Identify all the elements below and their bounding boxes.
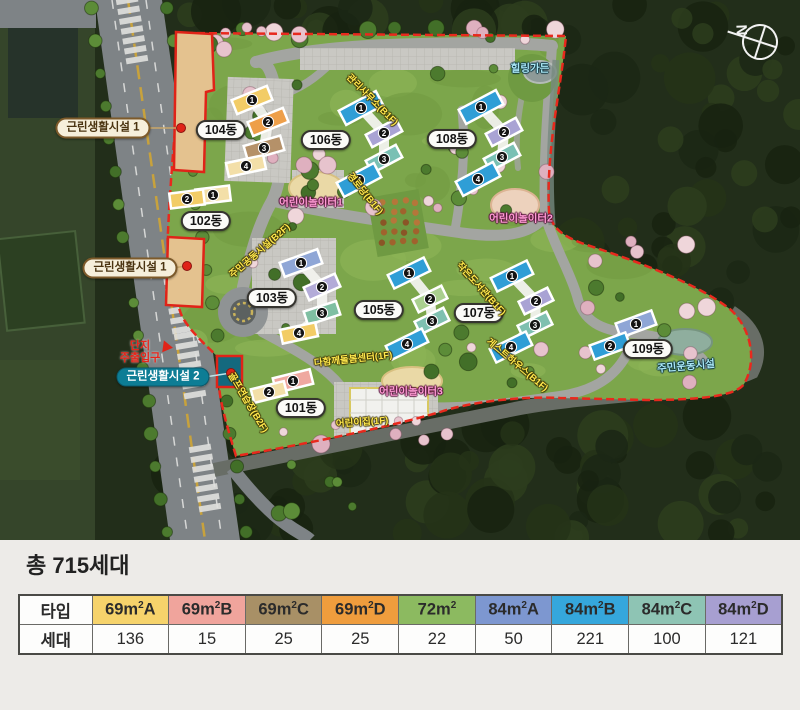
unit-badge-number: 4 xyxy=(509,343,514,352)
street-tree xyxy=(234,494,245,505)
tree xyxy=(489,64,498,73)
forest-blob xyxy=(618,217,638,237)
blossom-tree xyxy=(216,41,232,57)
unit-badge-number: 2 xyxy=(428,295,433,304)
water-area xyxy=(8,18,78,118)
garden-plot xyxy=(412,209,418,215)
tree xyxy=(388,22,401,35)
tree xyxy=(658,324,671,337)
garden-plot xyxy=(412,238,418,244)
forest-blob xyxy=(633,403,678,448)
forest-blob xyxy=(423,491,470,538)
compass-n-label: N xyxy=(732,24,749,35)
street-tree xyxy=(103,133,114,144)
forest-blob xyxy=(459,451,480,472)
blossom-tree xyxy=(248,258,258,268)
street-tree xyxy=(100,101,111,112)
forest-blob xyxy=(667,187,706,226)
garden-plot xyxy=(389,239,395,245)
unit-badge-number: 2 xyxy=(266,118,271,127)
forest-blob xyxy=(546,437,572,463)
unit-badge-number: 3 xyxy=(262,144,267,153)
unit-summary-section: 총 715세대 타입69m2A69m2B69m2C69m2D72m284m2A8… xyxy=(0,540,800,710)
unit-badge-number: 2 xyxy=(382,129,387,138)
blossom-tree xyxy=(242,23,252,33)
facility-marker-dot xyxy=(177,124,186,133)
unit-type-cell-1: 69m2B xyxy=(169,595,246,625)
facility-marker-dot xyxy=(183,262,192,271)
unit-badge-number: 4 xyxy=(297,329,302,338)
unit-badge-number: 3 xyxy=(430,317,435,326)
blossom-tree xyxy=(423,196,433,206)
site-plan-page: 121212341234123412341234123412 N 단지 주출입구… xyxy=(0,0,800,710)
forest-blob xyxy=(731,434,762,465)
forest-blob xyxy=(755,491,775,511)
blossom-tree xyxy=(678,236,695,253)
unit-badge-number: 1 xyxy=(359,104,364,113)
forest-blob xyxy=(664,52,716,104)
tree xyxy=(292,80,302,90)
forest-blob xyxy=(686,451,714,479)
tree xyxy=(430,66,444,80)
forest-blob xyxy=(731,160,757,186)
tree xyxy=(348,502,356,510)
unit-count-cell-1: 15 xyxy=(169,625,246,655)
unit-badge-number: 3 xyxy=(533,321,538,330)
playground-2 xyxy=(491,189,539,221)
tree xyxy=(459,353,477,371)
tree xyxy=(456,146,468,158)
tree xyxy=(454,325,469,340)
tree xyxy=(439,343,452,356)
sq-superscript: 2 xyxy=(598,600,604,611)
unit-count-cell-2: 25 xyxy=(245,625,322,655)
forest-blob xyxy=(500,421,524,445)
blossom-tree xyxy=(682,375,696,389)
unit-badge-number: 4 xyxy=(405,340,410,349)
retail-building-1b xyxy=(166,237,204,307)
forest-blob xyxy=(590,109,616,135)
unit-count-cell-0: 136 xyxy=(92,625,169,655)
tree xyxy=(287,460,296,469)
tree xyxy=(307,179,318,190)
garden-plot xyxy=(401,229,407,235)
street-tree xyxy=(144,427,158,441)
sq-superscript: 2 xyxy=(675,600,681,611)
street-tree xyxy=(162,527,173,538)
forest-blob xyxy=(692,23,713,44)
garden-plot xyxy=(391,209,397,215)
unit-badge-number: 1 xyxy=(299,259,304,268)
garden-plot xyxy=(381,229,387,235)
forest-blob xyxy=(578,470,599,491)
garden-plot xyxy=(414,219,420,225)
site-plan-rendering: 121212341234123412341234123412 N xyxy=(0,0,800,540)
blossom-tree xyxy=(279,428,287,436)
roundabout xyxy=(218,287,268,337)
blossom-tree xyxy=(588,254,602,268)
forest-blob xyxy=(762,59,782,79)
unit-type-cell-7: 84m2C xyxy=(629,595,706,625)
street-tree xyxy=(117,231,129,243)
forest-blob xyxy=(595,430,628,463)
forest-blob xyxy=(658,126,684,152)
unit-badge-number: 3 xyxy=(320,309,325,318)
street-tree xyxy=(230,460,243,473)
forest-blob xyxy=(467,486,514,533)
forest-blob xyxy=(757,80,779,102)
unit-count-cell-4: 22 xyxy=(399,625,476,655)
unit-badge-number: 1 xyxy=(479,103,484,112)
sq-superscript: 2 xyxy=(521,600,527,611)
tree xyxy=(421,164,431,174)
street-tree xyxy=(133,330,144,341)
forest-blob xyxy=(698,103,743,148)
unit-count-cell-8: 121 xyxy=(705,625,782,655)
tree xyxy=(283,503,300,520)
forest-blob xyxy=(602,176,630,204)
blossom-tree xyxy=(365,199,382,216)
blossom-tree xyxy=(319,156,337,174)
unit-type-cell-2: 69m2C xyxy=(245,595,322,625)
unit-badge-number: 1 xyxy=(211,191,216,200)
forest-blob xyxy=(726,260,750,284)
forest-blob xyxy=(671,8,692,29)
forest-blob xyxy=(695,157,716,178)
unit-badge-number: 2 xyxy=(608,342,613,351)
forest-blob xyxy=(776,36,795,55)
blossom-tree xyxy=(419,435,430,446)
street-tree xyxy=(240,526,252,538)
tree xyxy=(524,366,534,376)
street-tree xyxy=(113,199,124,210)
garden-plot xyxy=(403,219,409,225)
blossom-tree xyxy=(626,236,637,247)
street-tree xyxy=(161,2,174,15)
unit-badge-number: 2 xyxy=(534,297,539,306)
unit-badge-number: 4 xyxy=(357,176,362,185)
field-patch xyxy=(0,360,80,480)
unit-count-cell-3: 25 xyxy=(322,625,399,655)
street-tree xyxy=(124,265,135,276)
garden-plot xyxy=(391,217,397,223)
unit-count-cell-7: 100 xyxy=(629,625,706,655)
forest-blob xyxy=(489,444,536,491)
garden-plot xyxy=(412,200,418,206)
sq-superscript: 2 xyxy=(451,600,457,611)
unit-badge-number: 2 xyxy=(267,388,272,397)
unit-badge-number: 2 xyxy=(185,195,190,204)
sq-superscript: 2 xyxy=(215,600,221,611)
unit-badge-number: 2 xyxy=(502,128,507,137)
garden-plot xyxy=(391,228,397,234)
unit-badge-number: 4 xyxy=(476,175,481,184)
forest-blob xyxy=(557,64,609,116)
sq-superscript: 2 xyxy=(138,600,144,611)
street-tree xyxy=(110,166,122,178)
site-plan-map: 121212341234123412341234123412 N 단지 주출입구… xyxy=(0,0,800,540)
unit-badge-number: 1 xyxy=(510,272,515,281)
sports-field xyxy=(0,231,85,331)
street-tree xyxy=(85,1,99,15)
unit-badge-number: 3 xyxy=(500,153,505,162)
sq-superscript: 2 xyxy=(291,600,297,611)
unit-count-cell-5: 50 xyxy=(475,625,552,655)
tree xyxy=(289,222,297,230)
tree xyxy=(424,364,439,379)
grass-patch xyxy=(405,173,426,187)
tree xyxy=(589,280,604,295)
tree xyxy=(269,268,281,280)
unit-type-cell-8: 84m2D xyxy=(705,595,782,625)
unit-badge-number: 3 xyxy=(382,155,387,164)
unit-type-cell-5: 84m2A xyxy=(475,595,552,625)
blossom-tree xyxy=(539,164,554,179)
blossom-tree xyxy=(288,208,304,224)
unit-badge-number: 4 xyxy=(244,162,249,171)
facility-marker-dot xyxy=(227,369,236,378)
street-tree xyxy=(211,329,224,342)
street-tree xyxy=(154,493,167,506)
blossom-tree xyxy=(698,298,716,316)
forest-blob xyxy=(752,207,778,233)
blossom-tree xyxy=(441,428,453,440)
blossom-tree xyxy=(265,23,283,41)
garden-plot xyxy=(413,228,419,234)
blossom-tree xyxy=(467,343,476,352)
blossom-tree xyxy=(331,421,340,430)
sq-superscript: 2 xyxy=(368,600,374,611)
garden-plot xyxy=(400,208,406,214)
unit-badge-number: 1 xyxy=(407,269,412,278)
table-header-type: 타입 xyxy=(19,595,92,625)
forest-blob xyxy=(683,392,732,441)
sq-superscript: 2 xyxy=(751,600,757,611)
unit-type-cell-6: 84m2B xyxy=(552,595,629,625)
forest-blob xyxy=(587,484,629,526)
blossom-tree xyxy=(433,203,442,212)
unit-summary-table: 타입69m2A69m2B69m2C69m2D72m284m2A84m2B84m2… xyxy=(18,594,783,655)
unit-count-cell-6: 221 xyxy=(552,625,629,655)
garden-plot xyxy=(392,199,398,205)
street-tree xyxy=(136,362,148,374)
street-tree xyxy=(150,461,161,472)
street-tree xyxy=(142,394,155,407)
street-tree xyxy=(206,296,220,310)
blossom-tree xyxy=(679,303,695,319)
tree xyxy=(616,293,625,302)
unit-badge-number: 1 xyxy=(291,377,296,386)
street-tree xyxy=(89,34,102,47)
blossom-tree xyxy=(477,27,489,39)
garden-plot xyxy=(400,238,406,244)
tree xyxy=(500,205,511,216)
unit-type-cell-4: 72m2 xyxy=(399,595,476,625)
table-header-households: 세대 xyxy=(19,625,92,655)
street-tree xyxy=(129,298,139,308)
total-households-title: 총 715세대 xyxy=(26,548,130,580)
blossom-tree xyxy=(581,301,595,315)
garden-plot xyxy=(403,197,409,203)
blossom-tree xyxy=(296,157,312,173)
blossom-tree xyxy=(390,428,402,440)
tree xyxy=(332,477,342,487)
unit-type-cell-3: 69m2D xyxy=(322,595,399,625)
blossom-tree xyxy=(534,342,549,357)
tree xyxy=(359,21,376,38)
blossom-tree xyxy=(684,347,698,361)
tree xyxy=(507,378,517,388)
street-tree xyxy=(95,69,105,79)
blossom-tree xyxy=(596,364,605,373)
unit-badge-number: 1 xyxy=(250,96,255,105)
unit-type-cell-0: 69m2A xyxy=(92,595,169,625)
unit-badge-number: 2 xyxy=(320,283,325,292)
garden-plot xyxy=(380,219,386,225)
unit-badge-number: 1 xyxy=(634,320,639,329)
garden-plot xyxy=(379,240,385,246)
forest-blob xyxy=(708,481,741,514)
